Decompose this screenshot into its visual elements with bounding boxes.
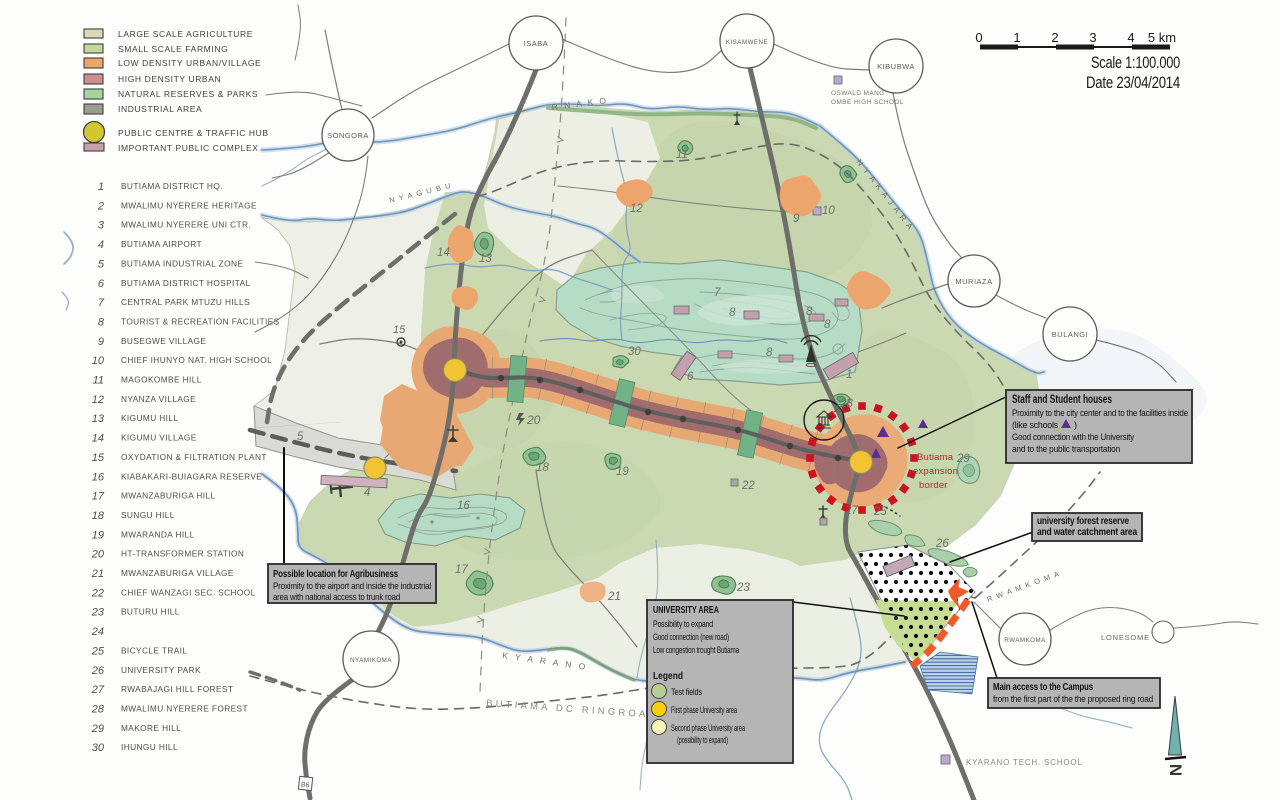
svg-text:OXYDATION & FILTRATION PLANT: OXYDATION & FILTRATION PLANT [121,452,267,462]
svg-text:1: 1 [846,369,852,381]
svg-text:22: 22 [741,480,755,492]
svg-text:CHIEF WANZAGI SEC. SCHOOL: CHIEF WANZAGI SEC. SCHOOL [121,587,256,597]
svg-text:5: 5 [297,431,304,443]
svg-text:8: 8 [98,316,105,328]
svg-text:BUTIAMA AIRPORT: BUTIAMA AIRPORT [121,239,202,249]
svg-text:Second phase University area: Second phase University area [671,723,746,734]
svg-text:8: 8 [824,319,831,331]
svg-text:Good connection with the Unive: Good connection with the University [1012,432,1134,442]
svg-text:KIGUMU VILLAGE: KIGUMU VILLAGE [121,433,197,443]
svg-text:14: 14 [92,433,104,445]
svg-text:BUTIAMA DISTRICT HOSPITAL: BUTIAMA DISTRICT HOSPITAL [121,278,251,288]
svg-text:Butiama: Butiama [917,452,954,463]
svg-text:24: 24 [91,626,104,638]
svg-text:HT-TRANSFORMER STATION: HT-TRANSFORMER STATION [121,549,244,559]
svg-text:N: N [1166,764,1185,776]
svg-text:SMALL SCALE FARMING: SMALL SCALE FARMING [118,44,228,54]
svg-text:9: 9 [793,213,800,225]
svg-text:16: 16 [457,500,470,512]
svg-text:SONGORA: SONGORA [327,131,369,140]
svg-text:27: 27 [844,505,858,517]
svg-text:(possibility to expand): (possibility to expand) [677,735,728,746]
svg-text:HIGH DENSITY URBAN: HIGH DENSITY URBAN [118,74,221,84]
svg-text:Possible location for Agribusi: Possible location for Agribusiness [273,568,398,580]
svg-text:2: 2 [1051,30,1058,45]
svg-text:MWANZABURIGA HILL: MWANZABURIGA HILL [121,491,216,501]
svg-text:Staff and Student houses: Staff and Student houses [1012,394,1112,406]
svg-text:18: 18 [536,462,549,474]
svg-text:21: 21 [607,591,621,603]
svg-text:CENTRAL PARK MTUZU HILLS: CENTRAL PARK MTUZU HILLS [121,297,250,307]
svg-text:NYANZA VILLAGE: NYANZA VILLAGE [121,394,196,404]
svg-text:6: 6 [687,371,694,383]
svg-text:BUTURU HILL: BUTURU HILL [121,607,180,617]
svg-text:INDUSTRIAL AREA: INDUSTRIAL AREA [118,104,202,114]
svg-text:BUTIAMA DISTRICT HQ.: BUTIAMA DISTRICT HQ. [121,181,223,191]
svg-text:BUSEGWE VILLAGE: BUSEGWE VILLAGE [121,336,206,346]
svg-text:Proximity to the airport and i: Proximity to the airport and inside the … [273,581,431,591]
svg-text:28: 28 [839,398,853,410]
svg-text:B6: B6 [301,781,310,789]
svg-text:26: 26 [935,538,949,550]
svg-text:20: 20 [91,549,105,561]
svg-text:5 km: 5 km [1148,30,1176,45]
svg-text:18: 18 [92,510,105,522]
svg-text:Low congestion trought Butiama: Low congestion trought Butiama [653,645,740,656]
svg-text:15: 15 [393,324,406,336]
svg-text:Legend: Legend [653,670,683,682]
svg-text:CHIEF IHUNYO NAT. HIGH SCHOOL: CHIEF IHUNYO NAT. HIGH SCHOOL [121,355,272,365]
svg-text:UNIVERSITY PARK: UNIVERSITY PARK [121,665,201,675]
svg-text:TOURIST & RECREATION FACILITIE: TOURIST & RECREATION FACILITIES [121,316,280,326]
svg-text:BICYCLE TRAIL: BICYCLE TRAIL [121,645,187,655]
svg-text:Possibility to expand: Possibility to expand [653,619,713,630]
svg-text:MWALIMU NYERERE FOREST: MWALIMU NYERERE FOREST [121,703,248,713]
svg-text:14: 14 [437,247,450,259]
svg-text:30: 30 [628,346,641,358]
svg-text:3: 3 [1089,30,1096,45]
svg-text:MWARANDA HILL: MWARANDA HILL [121,529,195,539]
svg-text:1: 1 [1013,30,1020,45]
svg-text:10: 10 [822,205,835,217]
svg-text:8: 8 [806,306,813,318]
svg-text:15: 15 [92,452,105,464]
svg-text:BULANGI: BULANGI [1052,330,1088,339]
svg-text:and to the public transportati: and to the public transportation [1012,444,1120,454]
svg-text:7: 7 [98,297,105,309]
svg-text:MWALIMU NYERERE UNI CTR.: MWALIMU NYERERE UNI CTR. [121,220,251,230]
svg-text:13: 13 [92,413,105,425]
svg-text:26: 26 [91,665,105,677]
svg-text:border: border [919,480,948,491]
svg-text:3: 3 [98,220,105,232]
svg-text:RWAMKOMA: RWAMKOMA [1004,637,1046,644]
svg-text:LOW DENSITY URBAN/VILLAGE: LOW DENSITY URBAN/VILLAGE [118,58,261,68]
svg-text:11: 11 [676,149,688,161]
svg-text:12: 12 [92,394,104,406]
svg-text:ISABA: ISABA [524,39,549,48]
svg-text:BUTIAMA INDUSTRIAL ZONE: BUTIAMA INDUSTRIAL ZONE [121,258,243,268]
svg-text:19: 19 [616,466,629,478]
svg-text:LARGE SCALE AGRICULTURE: LARGE SCALE AGRICULTURE [118,29,253,39]
svg-text:7: 7 [714,287,721,299]
svg-text:8: 8 [729,307,736,319]
svg-text:from the first part of the the: from the first part of the the proposed … [993,694,1153,704]
svg-text:OMBE HIGH SCHOOL: OMBE HIGH SCHOOL [831,99,904,106]
svg-text:MAGOKOMBE HILL: MAGOKOMBE HILL [121,375,202,385]
svg-text:Proximity to the city center a: Proximity to the city center and to the … [1012,408,1188,418]
svg-text:KYARANO TECH. SCHOOL: KYARANO TECH. SCHOOL [966,758,1083,767]
svg-text:27: 27 [91,684,105,696]
svg-text:2: 2 [97,200,104,212]
svg-text:KIABAKARI-BUIAGARA RESERVE: KIABAKARI-BUIAGARA RESERVE [121,471,262,481]
svg-text:25: 25 [873,506,887,518]
svg-text:25: 25 [91,645,105,657]
svg-text:16: 16 [92,471,105,483]
svg-text:17: 17 [455,564,468,576]
svg-text:UNIVERSITY AREA: UNIVERSITY AREA [653,604,719,616]
svg-text:First phase University area: First phase University area [671,705,738,716]
svg-text:8: 8 [766,347,773,359]
svg-text:19: 19 [92,529,104,541]
svg-text:22: 22 [91,587,104,599]
svg-text:Scale 1:100.000: Scale 1:100.000 [1091,54,1180,72]
svg-text:Date 23/04/2014: Date 23/04/2014 [1086,74,1180,92]
svg-text:MURIAZA: MURIAZA [955,277,992,286]
svg-text:4: 4 [364,487,370,499]
svg-text:9: 9 [98,336,104,348]
svg-text:NYAMIKOMA: NYAMIKOMA [350,657,392,664]
svg-text:13: 13 [479,253,492,265]
svg-text:expansion: expansion [913,466,958,477]
svg-text:Good connection (new road): Good connection (new road) [653,632,729,643]
svg-text:23: 23 [736,582,750,594]
svg-text:2: 2 [833,404,840,415]
svg-text:IMPORTANT PUBLIC COMPLEX: IMPORTANT PUBLIC COMPLEX [118,143,259,153]
svg-text:30: 30 [92,742,105,754]
svg-text:KIBUBWA: KIBUBWA [877,62,915,71]
svg-text:): ) [1074,420,1077,430]
svg-text:5: 5 [98,258,105,270]
svg-text:PUBLIC CENTRE & TRAFFIC HUB: PUBLIC CENTRE & TRAFFIC HUB [118,128,269,138]
svg-text:1: 1 [98,181,104,193]
svg-text:29: 29 [956,453,970,465]
svg-text:Test fields: Test fields [671,687,702,698]
svg-text:12: 12 [630,203,643,215]
svg-text:6: 6 [98,278,105,290]
svg-text:4: 4 [1127,30,1134,45]
svg-text:(like schools: (like schools [1012,420,1059,430]
svg-text:KIGUMU HILL: KIGUMU HILL [121,413,178,423]
svg-text:RWABAJAGI HILL FOREST: RWABAJAGI HILL FOREST [121,684,233,694]
svg-text:MWANZABURIGA VILLAGE: MWANZABURIGA VILLAGE [121,568,234,578]
svg-text:area with national access to t: area with national access to trunk road [273,592,400,602]
svg-text:KISAMWENE: KISAMWENE [726,39,768,46]
svg-text:21: 21 [91,568,104,580]
svg-text:OSWALD MANG': OSWALD MANG' [831,90,886,97]
svg-text:LONESOME: LONESOME [1101,633,1150,642]
svg-text:and water catchment area: and water catchment area [1037,527,1138,538]
svg-text:NATURAL RESERVES & PARKS: NATURAL RESERVES & PARKS [118,89,258,99]
svg-text:23: 23 [91,607,105,619]
svg-text:university forest reserve: university forest reserve [1037,516,1130,527]
svg-text:20: 20 [526,413,541,427]
svg-text:IHUNGU HILL: IHUNGU HILL [121,742,178,752]
svg-text:MWALIMU NYERERE HERITAGE: MWALIMU NYERERE HERITAGE [121,200,257,210]
svg-text:SUNGU HILL: SUNGU HILL [121,510,175,520]
svg-text:4: 4 [98,239,104,251]
svg-text:Main access to the Campus: Main access to the Campus [993,681,1093,693]
svg-text:17: 17 [92,491,105,503]
svg-text:11: 11 [93,375,104,387]
svg-text:10: 10 [92,355,105,367]
svg-text:29: 29 [91,723,104,735]
svg-text:0: 0 [975,30,982,45]
svg-text:MAKORE HILL: MAKORE HILL [121,723,181,733]
svg-text:28: 28 [91,703,105,715]
